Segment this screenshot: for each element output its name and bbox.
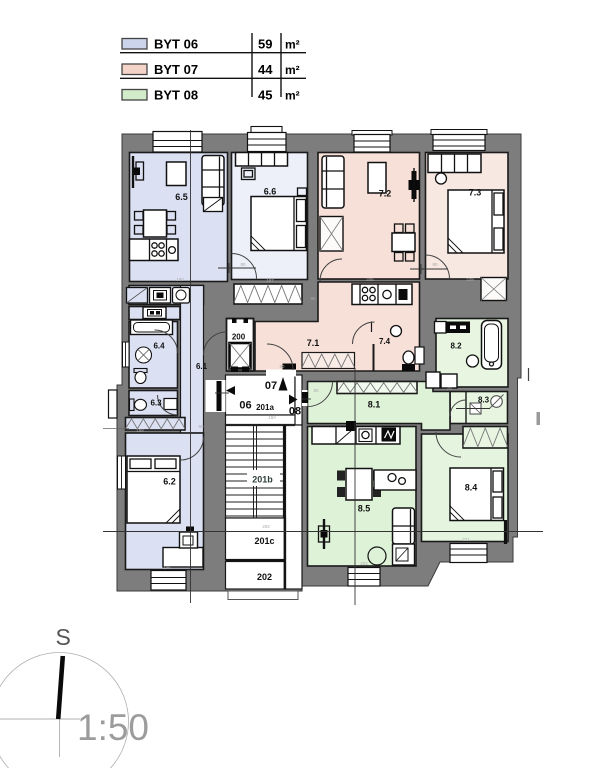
svg-text:S: S	[56, 624, 71, 650]
svg-text:06: 06	[239, 400, 251, 412]
svg-text:BYT 06: BYT 06	[154, 37, 198, 52]
svg-text:90: 90	[310, 296, 316, 301]
svg-text:80: 80	[432, 262, 438, 267]
svg-text:m²: m²	[285, 63, 300, 77]
svg-text:204: 204	[360, 561, 368, 566]
svg-text:45: 45	[258, 88, 272, 103]
svg-text:201c: 201c	[254, 536, 274, 546]
svg-text:m²: m²	[285, 38, 300, 52]
svg-text:80: 80	[313, 388, 319, 393]
svg-text:197: 197	[266, 278, 274, 283]
svg-text:8.3: 8.3	[478, 396, 490, 405]
svg-text:90: 90	[198, 424, 204, 429]
svg-text:1:50: 1:50	[77, 707, 149, 748]
svg-text:6.5: 6.5	[175, 192, 188, 202]
svg-text:80: 80	[240, 262, 246, 267]
svg-text:6.1: 6.1	[196, 362, 208, 371]
svg-text:6.3: 6.3	[150, 399, 162, 408]
svg-text:70: 70	[446, 386, 452, 391]
svg-text:BYT 07: BYT 07	[154, 62, 198, 77]
svg-text:245: 245	[366, 277, 374, 282]
svg-text:6.2: 6.2	[163, 477, 176, 487]
svg-text:196: 196	[163, 565, 171, 570]
svg-text:7.4: 7.4	[379, 337, 391, 346]
svg-text:8.5: 8.5	[358, 504, 371, 514]
svg-text:8.2: 8.2	[450, 342, 462, 351]
svg-text:201a: 201a	[256, 403, 274, 412]
svg-text:6.4: 6.4	[153, 342, 165, 351]
svg-text:m²: m²	[285, 89, 300, 103]
svg-text:6.6: 6.6	[264, 187, 277, 197]
svg-text:200: 200	[232, 333, 246, 342]
svg-text:150: 150	[268, 415, 276, 420]
svg-text:7.2: 7.2	[379, 189, 392, 199]
svg-text:07: 07	[265, 380, 277, 392]
svg-text:59: 59	[258, 37, 272, 52]
svg-text:228: 228	[466, 277, 474, 282]
svg-text:44: 44	[258, 62, 273, 77]
svg-text:201b: 201b	[252, 475, 273, 485]
svg-text:292: 292	[262, 524, 270, 529]
svg-text:90: 90	[279, 364, 285, 369]
svg-text:7.1: 7.1	[307, 338, 320, 348]
svg-text:180: 180	[176, 277, 184, 282]
svg-text:08: 08	[289, 406, 301, 418]
svg-text:8.4: 8.4	[465, 483, 478, 493]
svg-text:BYT 08: BYT 08	[154, 88, 198, 103]
svg-text:198: 198	[136, 428, 144, 433]
svg-text:221: 221	[462, 537, 470, 542]
svg-text:202: 202	[257, 572, 272, 582]
svg-text:7.3: 7.3	[469, 188, 482, 198]
svg-text:8.1: 8.1	[368, 400, 381, 410]
